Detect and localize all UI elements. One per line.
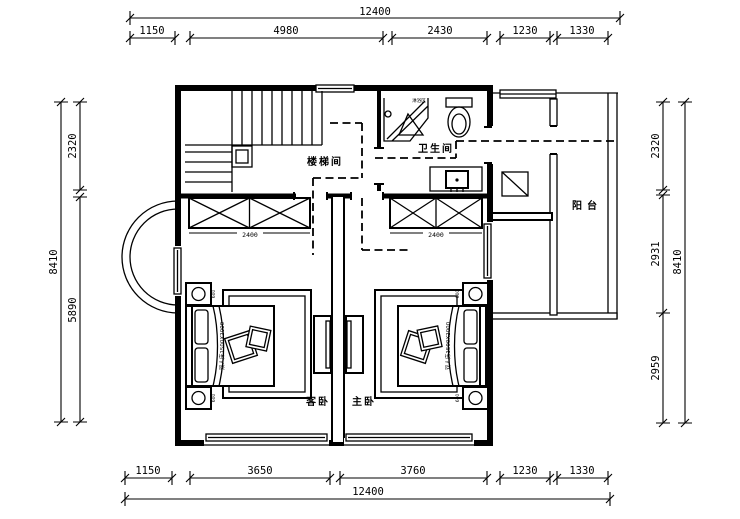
opening — [344, 438, 474, 448]
wardrobe-dim-label: 2400 — [428, 231, 444, 239]
bathroom: 淋浴区 卫生间 — [384, 97, 482, 192]
dimension-left: 8410 2320 5890 — [48, 98, 87, 426]
balcony-door-opening — [548, 126, 559, 154]
floor-plan-canvas: 12400 1150 4980 2430 1230 1330 1150 3650… — [0, 0, 740, 519]
opening — [484, 126, 494, 164]
shower-faucet-icon — [385, 111, 391, 117]
floor-plan-page: 12400 1150 4980 2430 1230 1330 1150 3650… — [0, 0, 740, 519]
tv-cabinet — [314, 316, 331, 373]
stair-step-inner — [236, 150, 248, 163]
nightstand: 600 — [186, 387, 217, 409]
toilet-tank — [446, 98, 472, 107]
vanity-drain — [455, 178, 458, 181]
guest-bedroom: 2400 双人床1500X2000 600 — [186, 198, 331, 409]
room-label-shower: 淋浴区 — [412, 97, 426, 104]
room-label-balcony: 阳台 — [572, 199, 602, 212]
bay-window — [122, 201, 178, 313]
nightstand-dim: 600 — [211, 394, 217, 403]
opening — [484, 222, 494, 280]
nightstand-dim: 600 — [211, 290, 217, 299]
dim-label-top-overall: 12400 — [359, 6, 391, 18]
balcony-interior-wall — [490, 213, 552, 220]
dim-label: 1150 — [135, 465, 160, 477]
nightstand-dim: 600 — [455, 394, 461, 403]
dim-label: 1230 — [512, 465, 537, 477]
room-label-stairwell: 楼梯间 — [307, 155, 343, 168]
cushion-outer — [246, 326, 271, 351]
shower-tray — [399, 114, 423, 135]
tv-cabinet-box — [346, 316, 363, 373]
dim-label-bottom-overall: 12400 — [352, 486, 384, 498]
dimension-right: 2320 2931 2959 8410 — [650, 98, 692, 427]
cushion — [417, 326, 442, 351]
bed-headboard — [186, 306, 192, 386]
dim-label: 4980 — [273, 25, 298, 37]
dim-label: 2959 — [650, 355, 662, 380]
cushion — [246, 326, 271, 351]
balcony-cabinet — [502, 172, 528, 196]
nightstand-box — [463, 283, 488, 305]
dim-label: 3760 — [400, 465, 425, 477]
nightstand: 600 — [186, 283, 217, 305]
dim-label: 3650 — [247, 465, 272, 477]
bed-headboard — [480, 306, 486, 386]
dim-label: 1330 — [569, 25, 594, 37]
bed-left: 双人床1500X2000 — [186, 306, 274, 386]
stair-treads — [185, 91, 322, 192]
opening — [352, 191, 382, 201]
dim-label: 2430 — [427, 25, 452, 37]
bay-arc-inner — [130, 209, 178, 305]
dim-label: 2931 — [650, 241, 662, 266]
center-wall — [332, 196, 344, 443]
toilet-bowl-inner — [452, 114, 466, 134]
wardrobe-dim-label: 2400 — [242, 231, 258, 239]
wardrobe-x — [189, 198, 310, 228]
dim-label: 2320 — [67, 133, 79, 158]
nightstand-box — [463, 387, 488, 409]
dim-label: 5890 — [67, 297, 79, 322]
nightstand-dim: 600 — [455, 290, 461, 299]
room-label-guest-bedroom: 客卧 — [305, 395, 330, 408]
dim-label: 1230 — [512, 25, 537, 37]
walls — [173, 83, 494, 448]
bed-right: 双人床1500X2000 — [398, 306, 486, 386]
nightstand: 600 — [455, 387, 488, 409]
cabinet-diagonal — [502, 172, 528, 196]
master-bedroom: 2400 双人床1500X2000 600 — [346, 198, 488, 409]
opening — [204, 438, 329, 448]
shower: 淋浴区 — [384, 97, 428, 141]
dimension-top: 12400 1150 4980 2430 1230 1330 — [126, 6, 624, 45]
toilet — [446, 98, 472, 137]
bed-size-label: 双人床1500X2000 — [218, 321, 226, 370]
dimension-bottom: 1150 3650 3760 1230 1330 12400 — [121, 465, 614, 506]
toilet-bowl — [448, 107, 470, 137]
balcony: 阳台 — [490, 90, 618, 319]
wardrobe-left: 2400 — [189, 198, 310, 239]
stair-step — [232, 146, 252, 167]
room-label-master-bedroom: 主卧 — [352, 395, 376, 408]
wardrobe-x — [390, 198, 482, 228]
dim-label: 2320 — [650, 133, 662, 158]
vanity — [430, 167, 482, 192]
room-label-bathroom: 卫生间 — [418, 142, 454, 155]
opening — [374, 148, 384, 184]
nightstand-box — [186, 387, 211, 409]
tv-cabinet-box — [314, 316, 331, 373]
bed-size-label: 双人床1500X2000 — [444, 321, 452, 370]
cushion-outer — [417, 326, 442, 351]
nightstand-box — [186, 283, 211, 305]
dim-label-left-overall: 8410 — [48, 249, 60, 274]
dim-label-right-overall: 8410 — [672, 249, 684, 274]
stairs: 楼梯间 — [185, 91, 343, 192]
tv-cabinet — [346, 316, 363, 373]
dim-label: 1330 — [569, 465, 594, 477]
nightstand: 600 — [455, 283, 488, 305]
dim-label: 1150 — [139, 25, 164, 37]
wardrobe-right: 2400 — [390, 198, 482, 239]
